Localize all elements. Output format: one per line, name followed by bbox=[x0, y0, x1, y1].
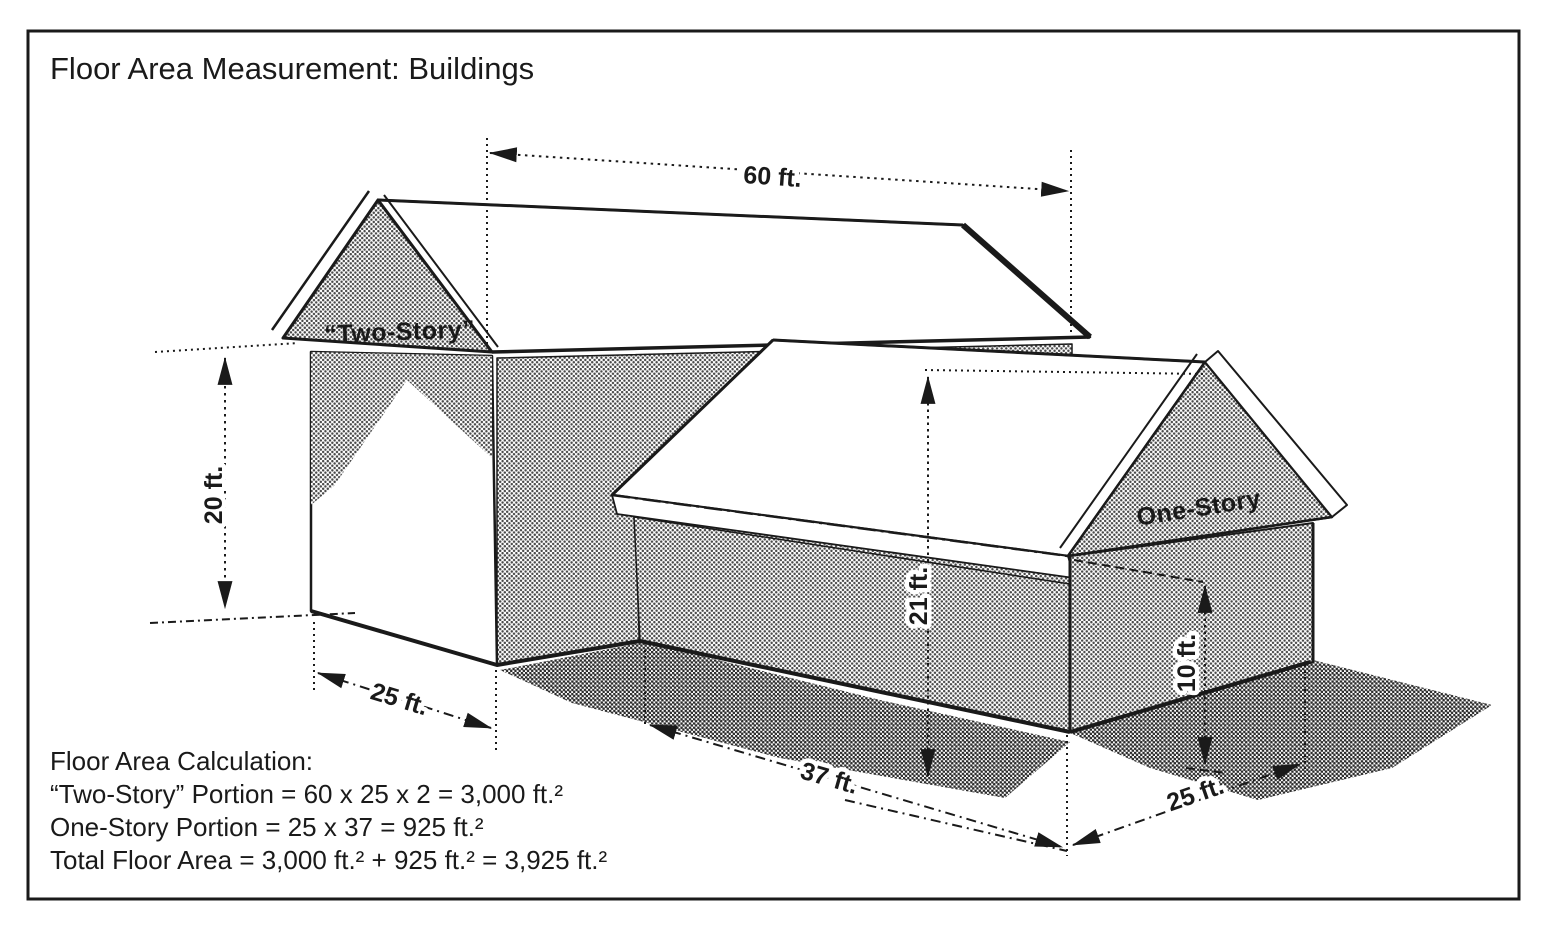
extension-line bbox=[155, 343, 298, 352]
calculation-heading: Floor Area Calculation: bbox=[50, 746, 313, 776]
extension-line bbox=[150, 613, 355, 623]
dimension-label-60ft: 60 ft. bbox=[742, 161, 802, 193]
scanned-figure-page: 60 ft. 20 ft. 25 ft. 37 ft. 21 ft. 10 ft… bbox=[0, 0, 1544, 927]
dimension-label-25ft-left: 25 ft. bbox=[367, 677, 431, 721]
floor-area-diagram: 60 ft. 20 ft. 25 ft. 37 ft. 21 ft. 10 ft… bbox=[0, 0, 1544, 927]
extension-line bbox=[845, 800, 1067, 851]
figure-title: Floor Area Measurement: Buildings bbox=[50, 51, 534, 86]
calculation-line-total: Total Floor Area = 3,000 ft.² + 925 ft.²… bbox=[50, 845, 607, 875]
calculation-line-one-story: One-Story Portion = 25 x 37 = 925 ft.² bbox=[50, 812, 484, 842]
calculation-block: Floor Area Calculation: “Two-Story” Port… bbox=[50, 746, 607, 875]
dimension-label-20ft: 20 ft. bbox=[200, 466, 228, 524]
dimension-label-21ft: 21 ft. bbox=[905, 567, 933, 625]
two-story-label: “Two-Story” bbox=[324, 315, 476, 348]
calculation-line-two-story: “Two-Story” Portion = 60 x 25 x 2 = 3,00… bbox=[50, 779, 563, 809]
dimension-label-10ft: 10 ft. bbox=[1173, 634, 1201, 692]
